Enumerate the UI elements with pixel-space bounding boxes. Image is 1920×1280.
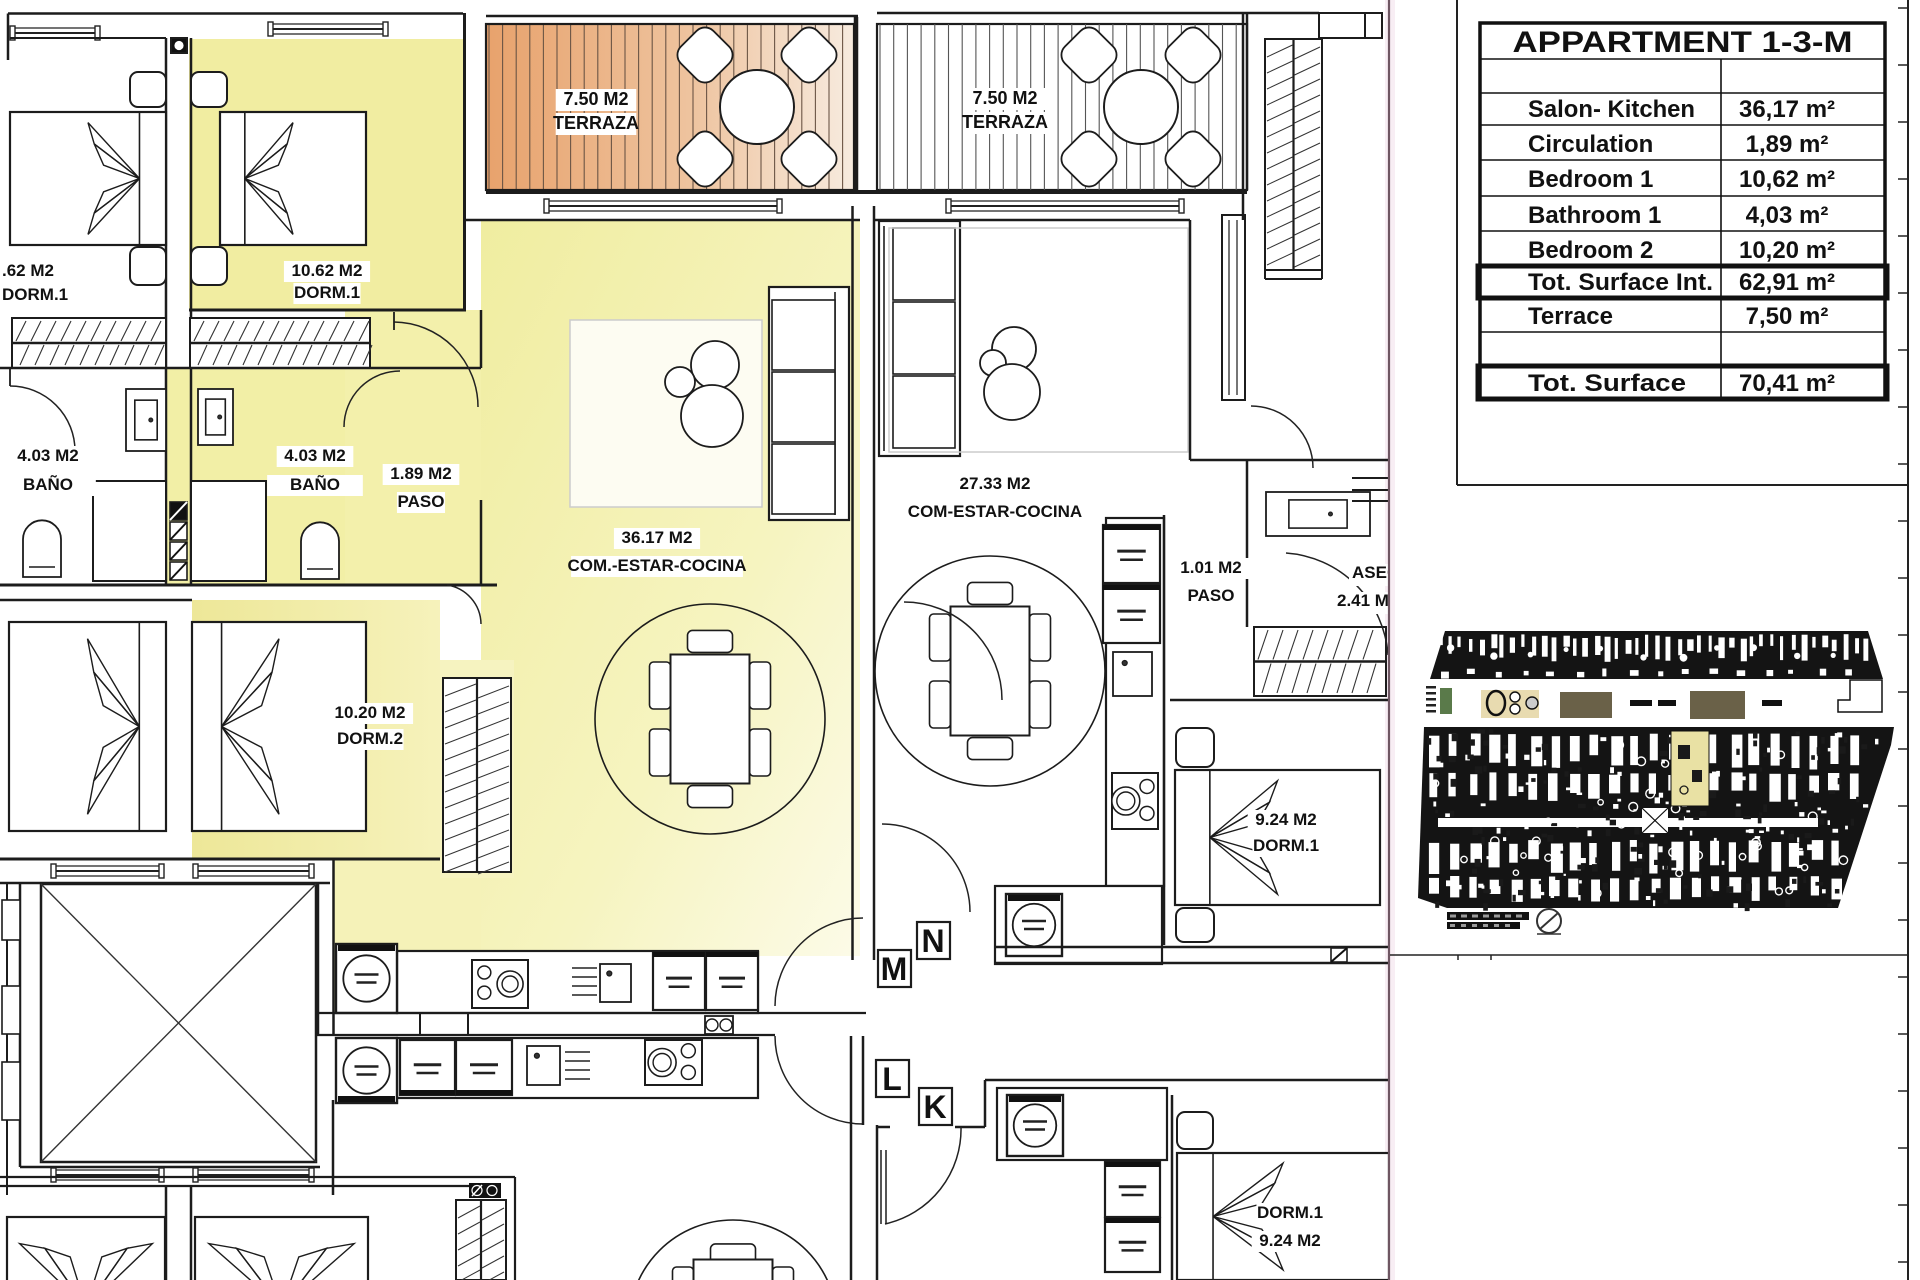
svg-text:PASO: PASO xyxy=(398,492,445,511)
svg-text:70,41 m²: 70,41 m² xyxy=(1739,370,1835,397)
svg-text:10,20 m²: 10,20 m² xyxy=(1739,237,1835,264)
svg-text:10.20 M2: 10.20 M2 xyxy=(335,703,406,722)
svg-text:4,03 m²: 4,03 m² xyxy=(1746,202,1829,229)
svg-text:Bathroom 1: Bathroom 1 xyxy=(1528,202,1661,229)
svg-text:.62 M2: .62 M2 xyxy=(2,261,54,280)
svg-text:Bedroom 2: Bedroom 2 xyxy=(1528,237,1653,264)
svg-text:DORM.1: DORM.1 xyxy=(1253,836,1319,855)
svg-text:COM-ESTAR-COCINA: COM-ESTAR-COCINA xyxy=(908,502,1082,521)
svg-text:BAÑO: BAÑO xyxy=(23,474,73,494)
svg-text:TERRAZA: TERRAZA xyxy=(553,113,639,133)
svg-text:Circulation: Circulation xyxy=(1528,131,1653,158)
svg-text:36,17 m²: 36,17 m² xyxy=(1739,96,1835,123)
svg-text:Tot. Surface Int.: Tot. Surface Int. xyxy=(1528,269,1713,296)
svg-text:1.01 M2: 1.01 M2 xyxy=(1180,558,1241,577)
svg-text:7.50 M2: 7.50 M2 xyxy=(563,89,628,109)
svg-text:DORM.1: DORM.1 xyxy=(1257,1203,1323,1222)
svg-text:M: M xyxy=(881,951,908,987)
svg-text:9.24 M2: 9.24 M2 xyxy=(1259,1231,1320,1250)
svg-text:TERRAZA: TERRAZA xyxy=(962,112,1048,132)
svg-text:Bedroom 1: Bedroom 1 xyxy=(1528,166,1653,193)
svg-text:PASO: PASO xyxy=(1188,586,1235,605)
svg-text:1.89 M2: 1.89 M2 xyxy=(390,464,451,483)
svg-text:BAÑO: BAÑO xyxy=(290,474,340,494)
svg-text:36.17 M2: 36.17 M2 xyxy=(622,528,693,547)
svg-text:1,89 m²: 1,89 m² xyxy=(1746,131,1829,158)
svg-text:Salon- Kitchen: Salon- Kitchen xyxy=(1528,96,1695,123)
svg-text:K: K xyxy=(923,1089,946,1125)
svg-text:9.24 M2: 9.24 M2 xyxy=(1255,810,1316,829)
svg-text:APPARTMENT 1-3-M: APPARTMENT 1-3-M xyxy=(1513,26,1853,59)
svg-text:10,62 m²: 10,62 m² xyxy=(1739,166,1835,193)
svg-text:COM.-ESTAR-COCINA: COM.-ESTAR-COCINA xyxy=(567,556,746,575)
svg-text:7.50 M2: 7.50 M2 xyxy=(972,88,1037,108)
svg-text:27.33 M2: 27.33 M2 xyxy=(960,474,1031,493)
svg-text:DORM.2: DORM.2 xyxy=(337,729,403,748)
svg-text:Tot. Surface: Tot. Surface xyxy=(1528,370,1686,397)
svg-text:DORM.1: DORM.1 xyxy=(2,285,68,304)
svg-text:N: N xyxy=(921,923,944,959)
svg-text:62,91 m²: 62,91 m² xyxy=(1739,269,1835,296)
svg-text:4.03 M2: 4.03 M2 xyxy=(17,446,78,465)
svg-text:L: L xyxy=(882,1061,902,1097)
svg-text:Terrace: Terrace xyxy=(1528,303,1613,330)
svg-text:DORM.1: DORM.1 xyxy=(294,283,360,302)
svg-text:7,50 m²: 7,50 m² xyxy=(1746,303,1829,330)
svg-text:10.62 M2: 10.62 M2 xyxy=(292,261,363,280)
svg-text:2.41 M: 2.41 M xyxy=(1337,591,1389,610)
svg-text:4.03 M2: 4.03 M2 xyxy=(284,446,345,465)
